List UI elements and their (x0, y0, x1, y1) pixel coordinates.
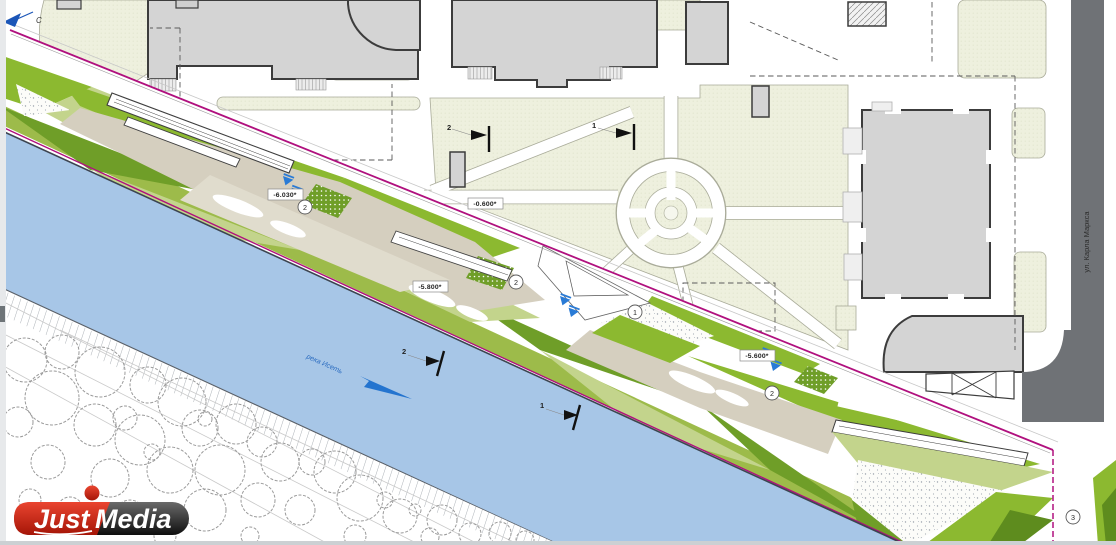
building-l-shaped (884, 316, 1023, 372)
svg-text:1: 1 (540, 401, 544, 410)
kiosk-2 (752, 86, 769, 117)
building-c (686, 2, 728, 64)
elevation-label: -0.600* (468, 198, 503, 209)
zone-badge: 2 (509, 275, 523, 289)
svg-text:2: 2 (514, 278, 518, 287)
street-name-label: ул. Карла Маркса (1082, 211, 1091, 273)
building-hatched (848, 2, 886, 26)
zone-badge: 2 (298, 200, 312, 214)
park-block-topright (958, 0, 1046, 78)
svg-text:2: 2 (402, 347, 406, 356)
svg-text:3: 3 (1071, 513, 1075, 522)
svg-text:1: 1 (592, 121, 596, 130)
svg-text:-5.800*: -5.800* (418, 284, 441, 291)
bottom-edge-strip (0, 541, 1116, 545)
elevation-label: -5.600* (740, 350, 775, 361)
masterplan-image: ул. Карла Маркса (0, 0, 1116, 545)
green-strip-right-1 (1012, 108, 1045, 158)
site-plan-canvas: ул. Карла Маркса (0, 0, 1116, 545)
logo-dot-icon (85, 486, 100, 501)
svg-text:2: 2 (770, 389, 774, 398)
building-main-right (862, 110, 990, 298)
kiosk-4 (176, 0, 198, 8)
svg-text:-6.030*: -6.030* (273, 192, 296, 199)
svg-text:2: 2 (447, 123, 451, 132)
kiosk-3 (57, 0, 81, 9)
circular-plaza (616, 158, 726, 268)
plaza-center (664, 206, 678, 220)
svg-text:-5.600*: -5.600* (745, 353, 768, 360)
zone-badge: 2 (765, 386, 779, 400)
north-letter: С (36, 16, 42, 25)
elevation-label: -5.800* (413, 281, 448, 292)
left-edge-tick (0, 306, 5, 322)
logo-text-media: Media (95, 504, 172, 534)
zone-badge: 3 (1066, 510, 1080, 524)
svg-text:-0.600*: -0.600* (473, 201, 496, 208)
green-square-small (836, 306, 856, 330)
svg-text:2: 2 (303, 203, 307, 212)
zone-badge: 1 (628, 305, 642, 319)
left-edge-strip (0, 0, 6, 545)
park-strip (217, 97, 420, 110)
logo-text-just: Just (34, 504, 91, 534)
svg-text:1: 1 (633, 308, 637, 317)
elevation-label: -6.030* (268, 189, 303, 200)
kiosk-1 (450, 152, 465, 187)
